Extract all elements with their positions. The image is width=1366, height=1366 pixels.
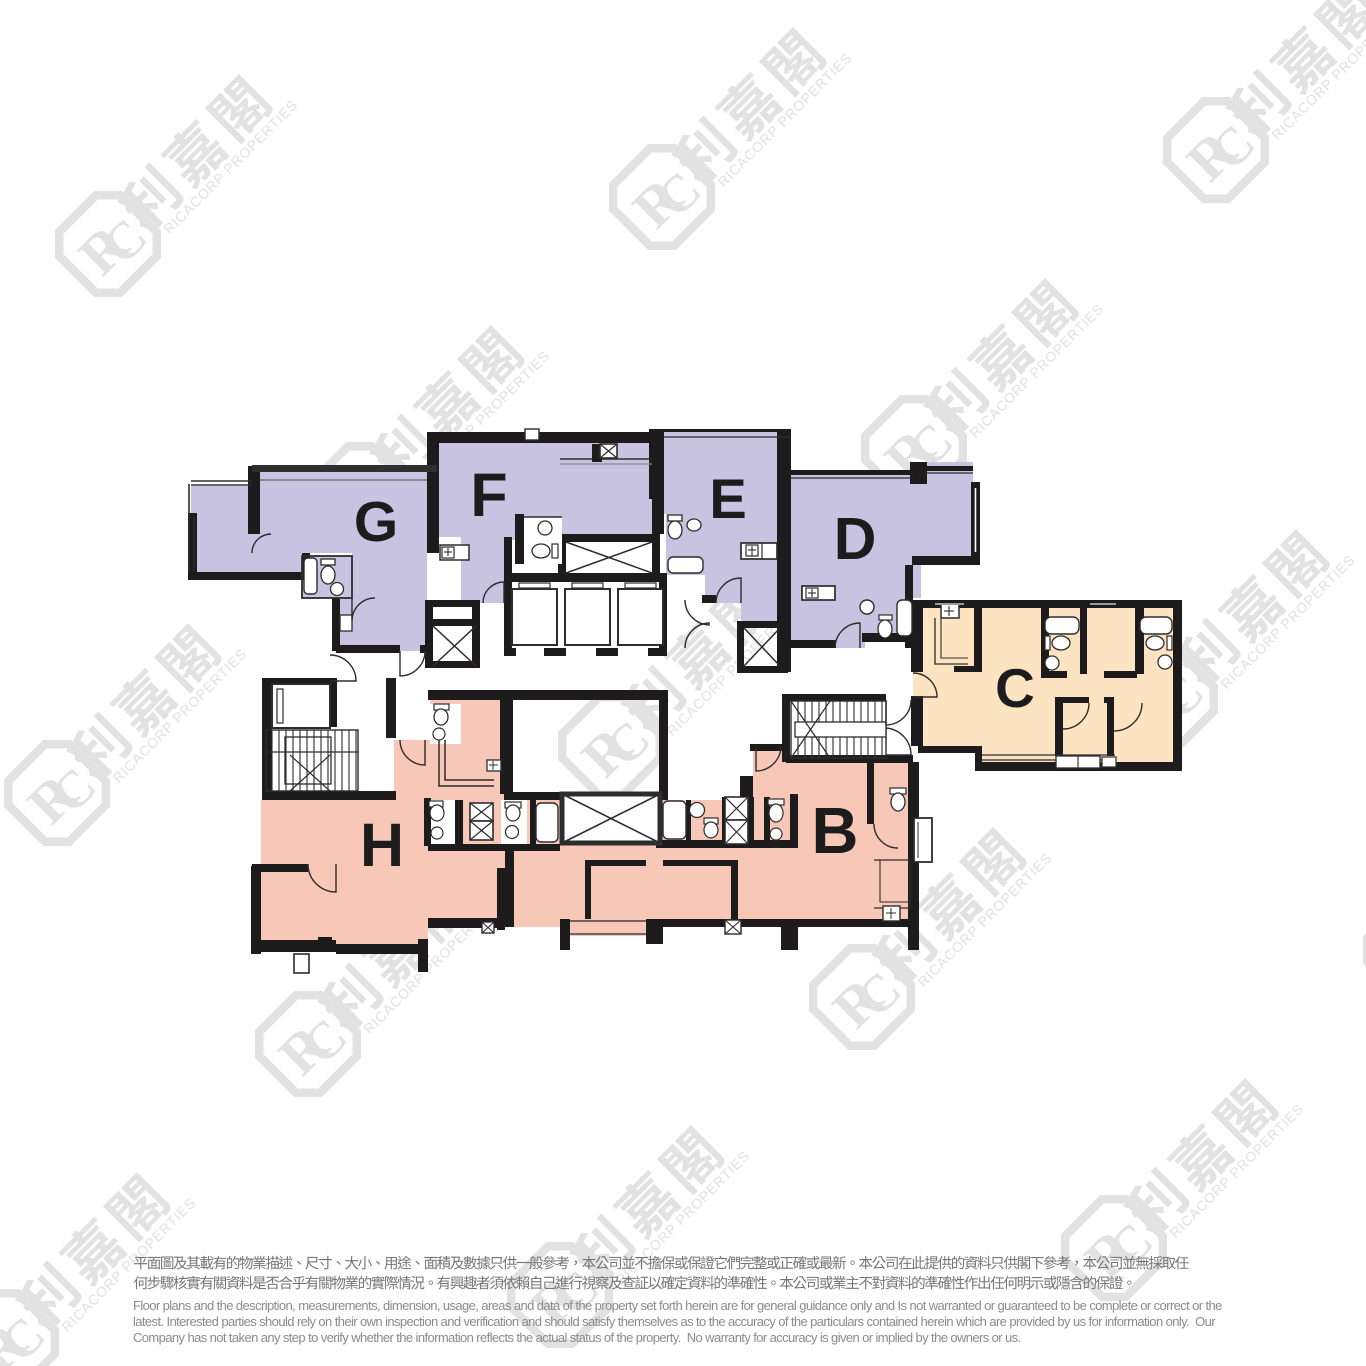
svg-text:B: B: [812, 794, 859, 867]
svg-text:G: G: [354, 490, 398, 554]
svg-text:E: E: [709, 467, 746, 530]
svg-text:H: H: [360, 811, 404, 879]
svg-text:F: F: [470, 461, 507, 529]
svg-text:D: D: [834, 506, 877, 572]
svg-text:C: C: [995, 657, 1035, 719]
